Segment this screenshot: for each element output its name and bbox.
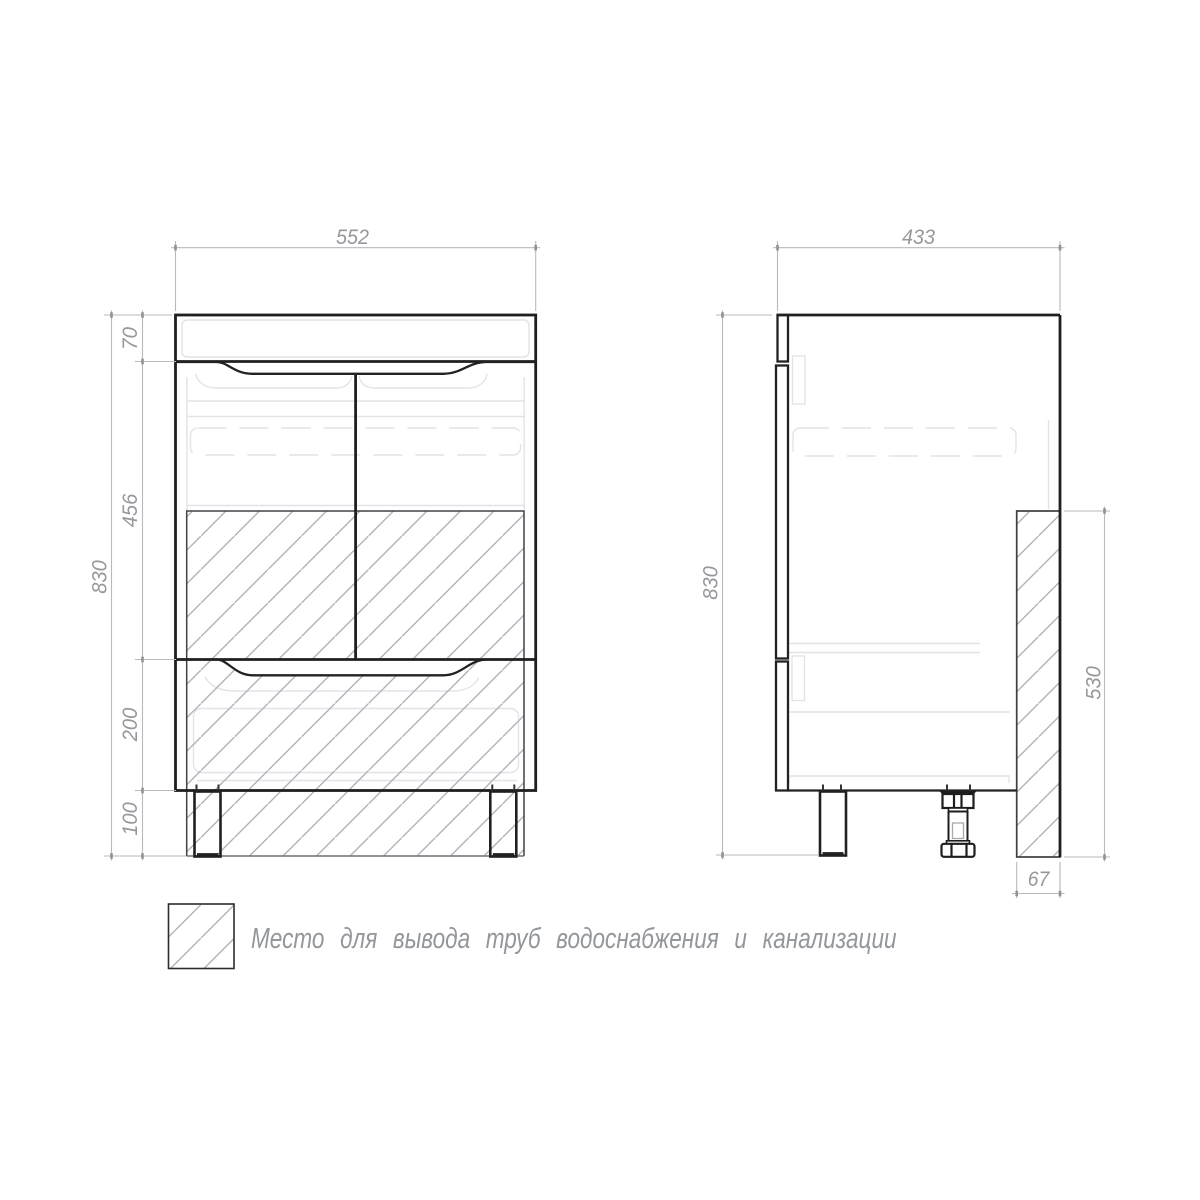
svg-text:100: 100 [119,802,142,836]
svg-text:830: 830 [89,560,112,594]
svg-text:Место для вывода труб водоснаб: Место для вывода труб водоснабжения и ка… [251,921,897,954]
svg-text:552: 552 [336,226,369,249]
svg-text:830: 830 [700,566,723,600]
svg-text:200: 200 [119,707,142,742]
svg-text:433: 433 [902,226,935,249]
svg-text:456: 456 [119,493,142,527]
svg-text:67: 67 [1028,868,1051,891]
svg-text:70: 70 [119,327,142,350]
svg-text:530: 530 [1083,666,1106,700]
